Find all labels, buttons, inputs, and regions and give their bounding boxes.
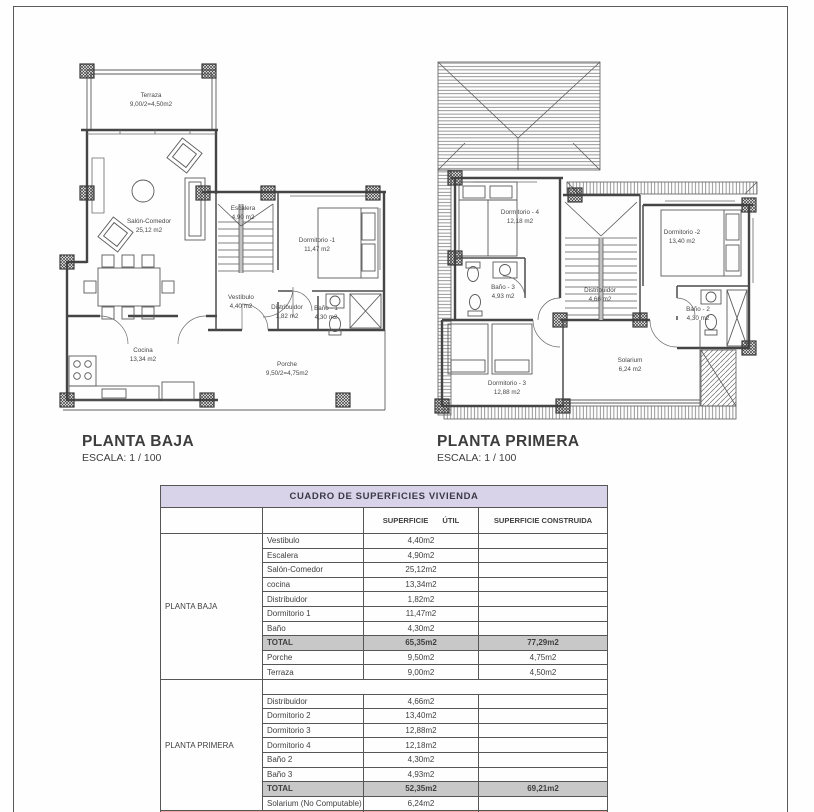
planta-primera-plan: Dormitorio - 4 12,18 m2 Dormitorio -2 13… xyxy=(415,58,800,438)
room-label-bano1: Baño - 1 xyxy=(314,305,338,312)
room-label-dormitorio2: Dormitorio -2 xyxy=(664,229,701,236)
column-icon xyxy=(435,399,449,413)
cell-construida xyxy=(479,694,608,709)
header-empty xyxy=(263,508,364,534)
cell-name: TOTAL xyxy=(263,636,364,651)
cell-name: Terraza xyxy=(263,665,364,680)
room-label-vestibulo: Vestíbulo xyxy=(228,294,254,301)
room-area-solarium: 6,24 m2 xyxy=(619,366,642,373)
window-lines xyxy=(473,182,753,283)
cell-util: 4,90m2 xyxy=(364,548,479,563)
planta-baja-title-block: PLANTA BAJA ESCALA: 1 / 100 xyxy=(82,433,194,464)
bidet-icon xyxy=(470,295,481,310)
bed-icon xyxy=(492,324,532,374)
surfaces-table: CUADRO DE SUPERFICIES VIVIENDA SUPERFICI… xyxy=(160,485,608,812)
room-label-porche: Porche xyxy=(277,361,297,368)
room-label-distribuidor: Distribuidor xyxy=(584,287,616,294)
room-area-terraza: 9,00/2=4,50m2 xyxy=(130,101,173,108)
room-area-dormitorio4: 12,18 m2 xyxy=(507,218,534,225)
cell-util: 4,40m2 xyxy=(364,534,479,549)
column-icon xyxy=(196,186,210,200)
column-icon xyxy=(200,393,214,407)
table-row: PLANTA BAJAVestibulo4,40m2 xyxy=(161,534,608,549)
column-icon xyxy=(60,393,74,407)
cell-construida xyxy=(479,534,608,549)
cell-construida xyxy=(479,767,608,782)
column-icon xyxy=(633,313,647,327)
room-label-bano3: Baño - 3 xyxy=(491,284,515,291)
plan-title: PLANTA PRIMERA xyxy=(437,433,580,451)
cell-construida xyxy=(479,563,608,578)
cell-util: 13,34m2 xyxy=(364,577,479,592)
cell-construida: 77,29m2 xyxy=(479,636,608,651)
cell-util: 11,47m2 xyxy=(364,606,479,621)
cell-util: 65,35m2 xyxy=(364,636,479,651)
column-icon xyxy=(261,186,275,200)
column-icon xyxy=(448,251,462,265)
room-label-escalera: Escalera xyxy=(231,205,256,212)
cell-util: 6,24m2 xyxy=(364,796,479,811)
cell-util: 1,82m2 xyxy=(364,592,479,607)
column-icon xyxy=(60,255,74,269)
cell-name: Distribuidor xyxy=(263,592,364,607)
stove-icon xyxy=(69,356,96,386)
header-empty xyxy=(161,508,263,534)
column-icon xyxy=(556,399,570,413)
surfaces-table-body: CUADRO DE SUPERFICIES VIVIENDA SUPERFICI… xyxy=(161,486,608,812)
column-icon xyxy=(448,171,462,185)
cell-construida xyxy=(479,548,608,563)
room-label-bano2: Baño - 2 xyxy=(686,306,710,313)
column-icon xyxy=(553,313,567,327)
cell-construida xyxy=(479,723,608,738)
kitchen-sink-icon xyxy=(102,389,126,398)
cell-name: Dormitorio 2 xyxy=(263,709,364,724)
sofa-icon xyxy=(167,138,202,173)
cell-name: Vestibulo xyxy=(263,534,364,549)
room-area-cocina: 13,34 m2 xyxy=(130,356,157,363)
room-label-dormitorio4: Dormitorio - 4 xyxy=(501,209,540,216)
cell-util: 4,66m2 xyxy=(364,694,479,709)
room-label-dormitorio1: Dormitorio -1 xyxy=(299,237,336,244)
cell-util: 9,50m2 xyxy=(364,650,479,665)
cell-name: Baño xyxy=(263,621,364,636)
column-icon xyxy=(742,198,756,212)
cell-construida xyxy=(479,577,608,592)
cell-util: 4,30m2 xyxy=(364,621,479,636)
toilet-icon xyxy=(468,267,479,282)
table-header-row: SUPERFICIE ÚTIL SUPERFICIE CONSTRUIDA xyxy=(161,508,608,534)
cell-name: Porche xyxy=(263,650,364,665)
room-area-distribuidor: 4,66 m2 xyxy=(589,296,612,303)
room-area-bano3: 4,93 m2 xyxy=(492,293,515,300)
cell-util: 12,88m2 xyxy=(364,723,479,738)
column-icon xyxy=(568,188,582,202)
room-area-escalera: 4,90 m2 xyxy=(232,214,255,221)
section-label: PLANTA PRIMERA xyxy=(161,679,263,810)
cell-name: TOTAL xyxy=(263,782,364,797)
cell-name: Baño 3 xyxy=(263,767,364,782)
roof-hatch xyxy=(438,62,757,419)
planta-primera-drawing: Dormitorio - 4 12,18 m2 Dormitorio -2 13… xyxy=(415,58,800,438)
plan-scale: ESCALA: 1 / 100 xyxy=(437,452,580,464)
room-label-salon: Salón-Comedor xyxy=(127,218,171,225)
room-label-solarium: Solarium xyxy=(618,357,643,364)
cell-name: Dormitorio 1 xyxy=(263,606,364,621)
cell-construida xyxy=(479,709,608,724)
cell-util: 4,93m2 xyxy=(364,767,479,782)
cell-util: 52,35m2 xyxy=(364,782,479,797)
room-area-bano2: 4,30 m2 xyxy=(687,315,710,322)
room-area-dormitorio1: 11,47 m2 xyxy=(304,246,330,253)
room-labels: Dormitorio - 4 12,18 m2 Dormitorio -2 13… xyxy=(488,209,710,396)
cell-util: 25,12m2 xyxy=(364,563,479,578)
column-icon xyxy=(336,393,350,407)
architectural-sheet: Terraza 9,00/2=4,50m2 Salón-Comedor 25,1… xyxy=(0,0,814,812)
room-area-distribuidor: 1,82 m2 xyxy=(276,313,299,320)
table-row: PLANTA PRIMERA xyxy=(161,679,608,694)
cell-name xyxy=(263,679,608,694)
header-superficie-util: SUPERFICIE ÚTIL xyxy=(364,508,479,534)
cell-construida xyxy=(479,738,608,753)
section-label: PLANTA BAJA xyxy=(161,534,263,680)
cell-name: Dormitorio 4 xyxy=(263,738,364,753)
room-label-cocina: Cocina xyxy=(133,347,153,354)
cell-construida xyxy=(479,592,608,607)
fridge-icon xyxy=(162,382,194,400)
column-icon xyxy=(366,186,380,200)
round-table-icon xyxy=(132,180,154,202)
window-lines xyxy=(87,130,380,270)
column-icon xyxy=(80,64,94,78)
room-label-distribuidor: Distribuidor xyxy=(271,304,303,311)
room-area-salon: 25,12 m2 xyxy=(136,227,163,234)
cell-construida xyxy=(479,752,608,767)
header-superficie-construida: SUPERFICIE CONSTRUIDA xyxy=(479,508,608,534)
cell-name: Distribuidor xyxy=(263,694,364,709)
column-icon xyxy=(742,341,756,355)
columns xyxy=(60,64,380,407)
cell-util: 12,18m2 xyxy=(364,738,479,753)
dining-table-icon xyxy=(84,255,174,319)
bed-icon xyxy=(448,324,488,374)
room-area-dormitorio3: 12,88 m2 xyxy=(494,389,521,396)
cell-construida xyxy=(479,796,608,811)
cell-construida: 69,21m2 xyxy=(479,782,608,797)
bathroom-fixtures xyxy=(466,262,747,346)
cell-name: Baño 2 xyxy=(263,752,364,767)
table-title-row: CUADRO DE SUPERFICIES VIVIENDA xyxy=(161,486,608,508)
cell-name: Escalera xyxy=(263,548,364,563)
cell-util: 9,00m2 xyxy=(364,665,479,680)
room-label-dormitorio3: Dormitorio - 3 xyxy=(488,380,527,387)
planta-baja-plan: Terraza 9,00/2=4,50m2 Salón-Comedor 25,1… xyxy=(40,58,400,438)
room-area-porche: 9,50/2=4,75m2 xyxy=(266,370,309,377)
cell-name: Solarium (No Computable) xyxy=(263,796,364,811)
cell-name: Dormitorio 3 xyxy=(263,723,364,738)
terraza-outline xyxy=(87,70,216,130)
cell-name: cocina xyxy=(263,577,364,592)
planta-primera-title-block: PLANTA PRIMERA ESCALA: 1 / 100 xyxy=(437,433,580,464)
beds xyxy=(448,182,741,374)
column-icon xyxy=(202,64,216,78)
cell-util: 13,40m2 xyxy=(364,709,479,724)
table-title: CUADRO DE SUPERFICIES VIVIENDA xyxy=(161,486,608,508)
room-area-dormitorio2: 13,40 m2 xyxy=(669,238,696,245)
cell-construida: 4,50m2 xyxy=(479,665,608,680)
planta-baja-drawing: Terraza 9,00/2=4,50m2 Salón-Comedor 25,1… xyxy=(40,58,400,438)
room-label-terraza: Terraza xyxy=(141,92,162,99)
cell-construida xyxy=(479,606,608,621)
plan-title: PLANTA BAJA xyxy=(82,433,194,451)
column-icon xyxy=(80,186,94,200)
cell-construida: 4,75m2 xyxy=(479,650,608,665)
cell-util: 4,30m2 xyxy=(364,752,479,767)
plan-scale: ESCALA: 1 / 100 xyxy=(82,452,194,464)
cell-construida xyxy=(479,621,608,636)
room-area-vestibulo: 4,40 m2 xyxy=(230,303,253,310)
room-labels: Terraza 9,00/2=4,50m2 Salón-Comedor 25,1… xyxy=(127,92,338,377)
cell-name: Salón-Comedor xyxy=(263,563,364,578)
room-area-bano1: 4,30 m2 xyxy=(315,314,338,321)
